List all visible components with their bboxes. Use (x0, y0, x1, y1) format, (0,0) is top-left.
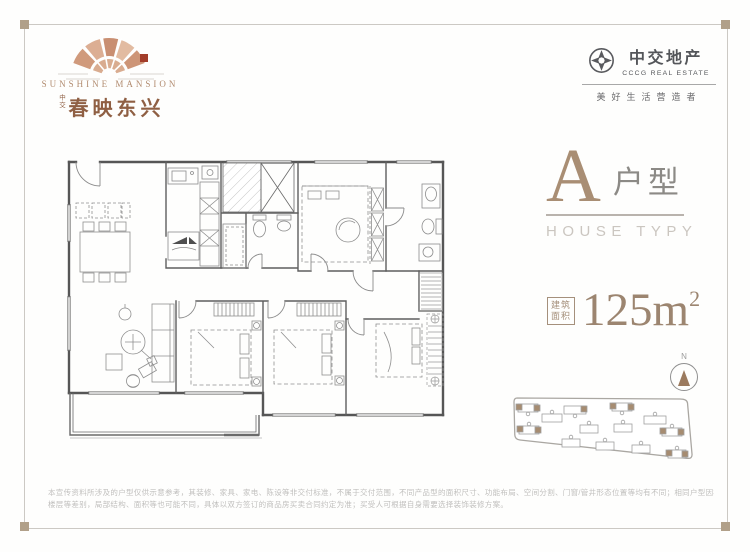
corner-ornament-top-right (721, 20, 730, 29)
developer-name-en: CCCG REAL ESTATE (622, 70, 710, 77)
area-label-line2: 面积 (551, 311, 571, 322)
north-label: N (666, 352, 702, 361)
unit-type-subtitle: HOUSE TYPY (546, 223, 696, 240)
floor-plan (56, 146, 462, 486)
master-bathroom-fixtures (419, 184, 442, 261)
developer-brand: 中交地产 CCCG REAL ESTATE 美好生活营造者 (578, 44, 720, 103)
disclaimer-line2: 楼层等差别，局部结构、面积等也可能不同，具体以双方签订的商品房买卖合同约定为准；… (48, 499, 714, 511)
corner-ornament-bottom-left (20, 522, 29, 531)
area-label-line1: 建筑 (551, 300, 571, 311)
corner-ornament-bottom-right (721, 522, 730, 531)
developer-slogan: 美好生活营造者 (578, 90, 720, 103)
compass-needle (678, 370, 690, 386)
north-compass: N (666, 352, 702, 391)
compass-icon (670, 363, 698, 391)
disclaimer-line1: 本宣传资料所涉及的户型仅供示意参考，其装修、家具、家电、陈设等非交付标准，不属于… (48, 487, 714, 499)
balcony (70, 393, 262, 438)
project-name-prefix: 中交 (56, 94, 66, 109)
bedroom-3 (274, 303, 344, 385)
area-value: 125m2 (582, 287, 700, 334)
project-name-en: SUNSHINE MANSION (30, 79, 190, 89)
area-block: 建筑 面积 125m2 (547, 287, 700, 334)
living-room (106, 304, 174, 388)
project-name-main: 春映东兴 (69, 98, 165, 120)
area-label-box: 建筑 面积 (547, 297, 575, 325)
disclaimer: 本宣传资料所涉及的户型仅供示意参考，其装修、家具、家电、陈设等非交付标准，不属于… (48, 487, 714, 510)
utility-shaft (223, 163, 294, 212)
kitchen-fixtures (168, 166, 219, 266)
fan-logo-icon (52, 24, 172, 86)
storage-closets (420, 273, 444, 386)
site-plan (504, 392, 704, 478)
brochure-page: SUNSHINE MANSION 中交春映东兴 中交地产 CCCG REAL E… (0, 0, 750, 552)
bathroom-fixtures (223, 215, 291, 268)
dining-area (76, 203, 130, 282)
unit-type-block: A 户型 HOUSE TYPY (546, 142, 696, 240)
brand-divider (582, 84, 716, 85)
bedroom-2 (191, 303, 261, 386)
unit-type-letter: A (546, 142, 601, 212)
developer-name-cn: 中交地产 (622, 44, 710, 68)
unit-type-label: 户型 (613, 157, 683, 202)
bedroom-4 (376, 324, 422, 377)
cccg-logo-icon (588, 47, 615, 74)
master-bedroom (302, 186, 384, 264)
corner-ornament-top-left (20, 20, 29, 29)
project-name-cn: 中交春映东兴 (30, 92, 190, 121)
seal-icon (140, 54, 148, 62)
